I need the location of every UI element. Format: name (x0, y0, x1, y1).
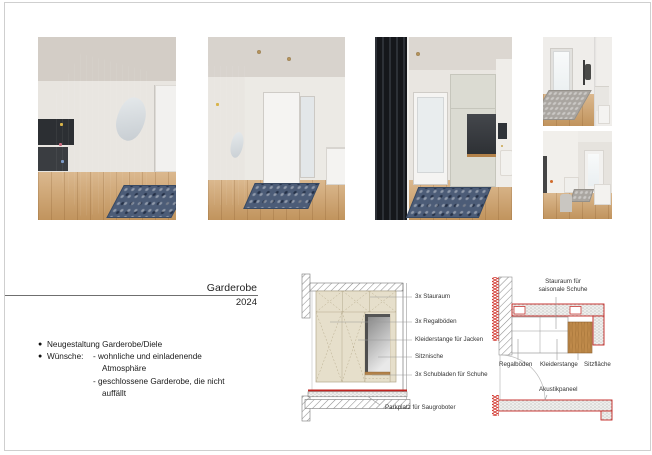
wardrobe-seam (450, 108, 495, 109)
white-bin (598, 105, 610, 125)
plan-drawing (490, 274, 615, 429)
elevation-label-kleiderstange: Kleiderstange für Jacken (415, 336, 483, 344)
note-item-2-label: Wünsche: (47, 352, 83, 361)
frosted-sidelight (300, 96, 316, 179)
slide-page: Garderobe 2024 ● Neugestaltung Garderobe… (0, 0, 652, 455)
plan-label-sitzflaeche: Sitzfläche (584, 361, 611, 369)
photo-wardrobe-niche (375, 37, 512, 220)
title-rule (5, 295, 258, 296)
elevation-drawing (300, 272, 415, 422)
hanging-bag (500, 150, 512, 176)
photo-hallway-view (208, 37, 345, 220)
sideboard (326, 147, 345, 186)
plan-label-regalboeden: Regalböden (499, 361, 532, 369)
note-wish-1-line-2: Atmosphäre (102, 364, 146, 373)
gray-mat (570, 189, 594, 202)
plan-label-saisonale-schuhe: Stauraum für saisonale Schuhe (528, 278, 598, 293)
photo-entrance-before-top (543, 37, 612, 126)
entry-door (263, 92, 301, 184)
bench-seat (467, 154, 496, 157)
wall-edge-strip (407, 37, 409, 220)
open-niche (467, 114, 496, 154)
patterned-rug (406, 187, 492, 218)
elevation-label-schubladen: 3x Schubladen für Schuhe (415, 371, 488, 379)
hanging-coat (585, 64, 591, 80)
note-wish-2-line-2: auffällt (102, 389, 126, 398)
photo-entry-mirror-wall (38, 37, 176, 220)
door-window (588, 154, 599, 186)
plan-label-akustikpaneel: Akustikpaneel (539, 386, 578, 394)
elevation-label-stauraum: 3x Stauraum (415, 293, 450, 301)
wall-tablet (498, 123, 506, 139)
page-year: 2024 (150, 297, 257, 308)
gray-bag (560, 194, 572, 212)
frosted-pane (417, 97, 444, 172)
elevation-label-saugroboter: Parkplatz für Saugroboter (385, 404, 456, 412)
white-box (594, 184, 611, 205)
black-slat-wall (375, 37, 407, 220)
bullet-icon: ● (38, 353, 42, 360)
note-wish-2-line-1: - geschlossene Garderobe, die nicht (93, 377, 225, 386)
note-wish-1-line-1: - wohnliche und einladenende (93, 352, 202, 361)
gold-hook (501, 145, 503, 147)
elevation-label-sitznische: Sitznische (415, 353, 443, 361)
note-item-1: Neugestaltung Garderobe/Diele (47, 340, 162, 349)
plan-label-line-2: saisonale Schuhe (528, 286, 598, 294)
plan-label-kleiderstange: Kleiderstange (540, 361, 578, 369)
bullet-icon: ● (38, 341, 42, 348)
chalk-mark (60, 123, 63, 126)
ceiling-light (416, 52, 420, 56)
entry-door (154, 85, 176, 173)
patterned-rug (243, 183, 319, 209)
page-title: Garderobe (150, 282, 257, 294)
chalk-mark (216, 103, 219, 106)
elevation-label-regalboeden: 3x Regalböden (415, 318, 457, 326)
photo-entrance-before-bottom (543, 131, 612, 219)
plan-label-line-1: Stauraum für (528, 278, 598, 286)
chalk-mark (59, 143, 62, 146)
